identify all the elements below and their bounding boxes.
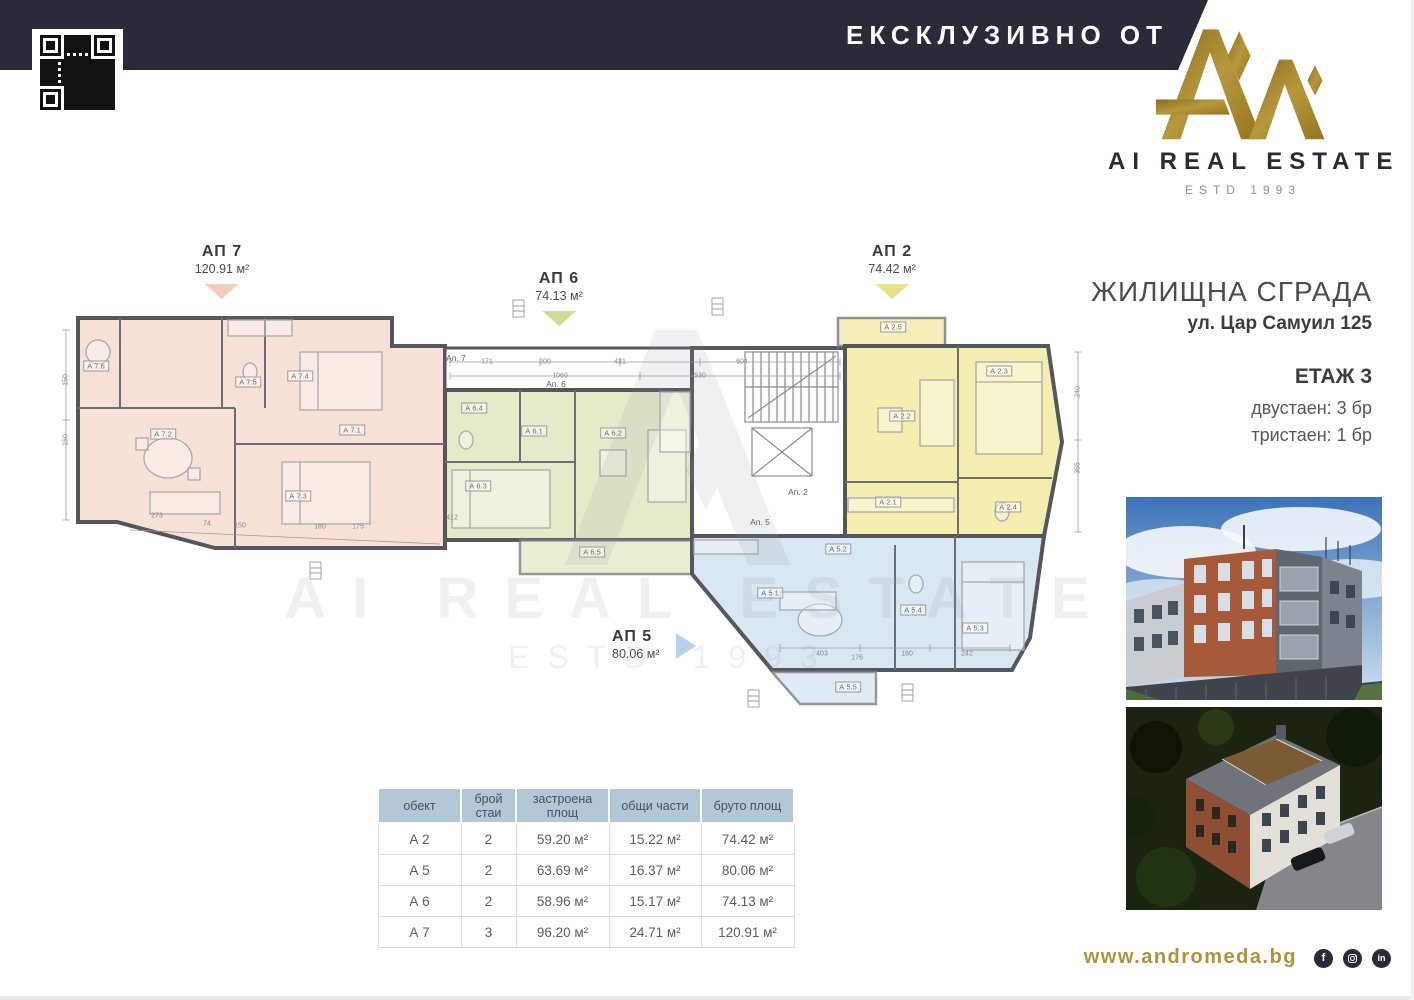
table-cell: 15.22 м² bbox=[609, 823, 701, 855]
table-cell: А 2 bbox=[378, 823, 461, 855]
page: ЕКСКЛУЗИВНО ОТ AI REAL ESTATE ESTD 1993 … bbox=[0, 0, 1414, 1000]
table-cell: А 6 bbox=[378, 886, 461, 917]
table-row: А 5263.69 м²16.37 м²80.06 м² bbox=[378, 855, 794, 886]
social-links: fin bbox=[1314, 949, 1391, 968]
table-header-cell: бруто площ bbox=[701, 788, 794, 823]
table-row: А 6258.96 м²15.17 м²74.13 м² bbox=[378, 886, 794, 917]
apartments-table: обектброй стаизастроена площобщи частибр… bbox=[377, 787, 795, 948]
svg-text:ESTD 1993: ESTD 1993 bbox=[508, 639, 835, 675]
table-cell: 63.69 м² bbox=[516, 855, 609, 886]
table-cell: 24.71 м² bbox=[609, 917, 701, 948]
table-header-row: обектброй стаизастроена площобщи частибр… bbox=[378, 788, 794, 823]
table-cell: 120.91 м² bbox=[701, 917, 794, 948]
table-cell: 3 bbox=[461, 917, 516, 948]
instagram-icon[interactable] bbox=[1343, 949, 1362, 968]
building-render-photo-2 bbox=[1126, 707, 1382, 910]
table-row: А 7396.20 м²24.71 м²120.91 м² bbox=[378, 917, 794, 948]
table-cell: 74.13 м² bbox=[701, 886, 794, 917]
table-cell: 2 bbox=[461, 823, 516, 855]
instagram-glyph bbox=[1348, 954, 1357, 963]
table-cell: 16.37 м² bbox=[609, 855, 701, 886]
table-cell: 2 bbox=[461, 886, 516, 917]
table-header-cell: общи части bbox=[609, 788, 701, 823]
facebook-glyph: f bbox=[1322, 953, 1326, 964]
table-cell: 58.96 м² bbox=[516, 886, 609, 917]
facebook-icon[interactable]: f bbox=[1314, 949, 1333, 968]
table-cell: 74.42 м² bbox=[701, 823, 794, 855]
building-render-photo-1 bbox=[1126, 497, 1382, 700]
linkedin-icon[interactable]: in bbox=[1372, 949, 1391, 968]
apartment-2-terrace bbox=[838, 318, 945, 346]
table-header-cell: обект bbox=[378, 788, 461, 823]
table-cell: 59.20 м² bbox=[516, 823, 609, 855]
linkedin-glyph: in bbox=[1378, 954, 1386, 963]
page-bottom-edge bbox=[0, 996, 1414, 1000]
table-cell: 96.20 м² bbox=[516, 917, 609, 948]
website-link[interactable]: www.andromeda.bg bbox=[1084, 946, 1297, 969]
table-cell: 15.17 м² bbox=[609, 886, 701, 917]
table-header-cell: брой стаи bbox=[461, 788, 516, 823]
table-cell: А 7 bbox=[378, 917, 461, 948]
apartment-5-balcony bbox=[772, 672, 876, 704]
table-cell: 2 bbox=[461, 855, 516, 886]
table-cell: 80.06 м² bbox=[701, 855, 794, 886]
table-header-cell: застроена площ bbox=[516, 788, 609, 823]
apartment-7-area bbox=[78, 318, 445, 548]
table-row: А 2259.20 м²15.22 м²74.42 м² bbox=[378, 823, 794, 855]
table-cell: А 5 bbox=[378, 855, 461, 886]
svg-text:AI REAL ESTATE: AI REAL ESTATE bbox=[284, 566, 1115, 631]
